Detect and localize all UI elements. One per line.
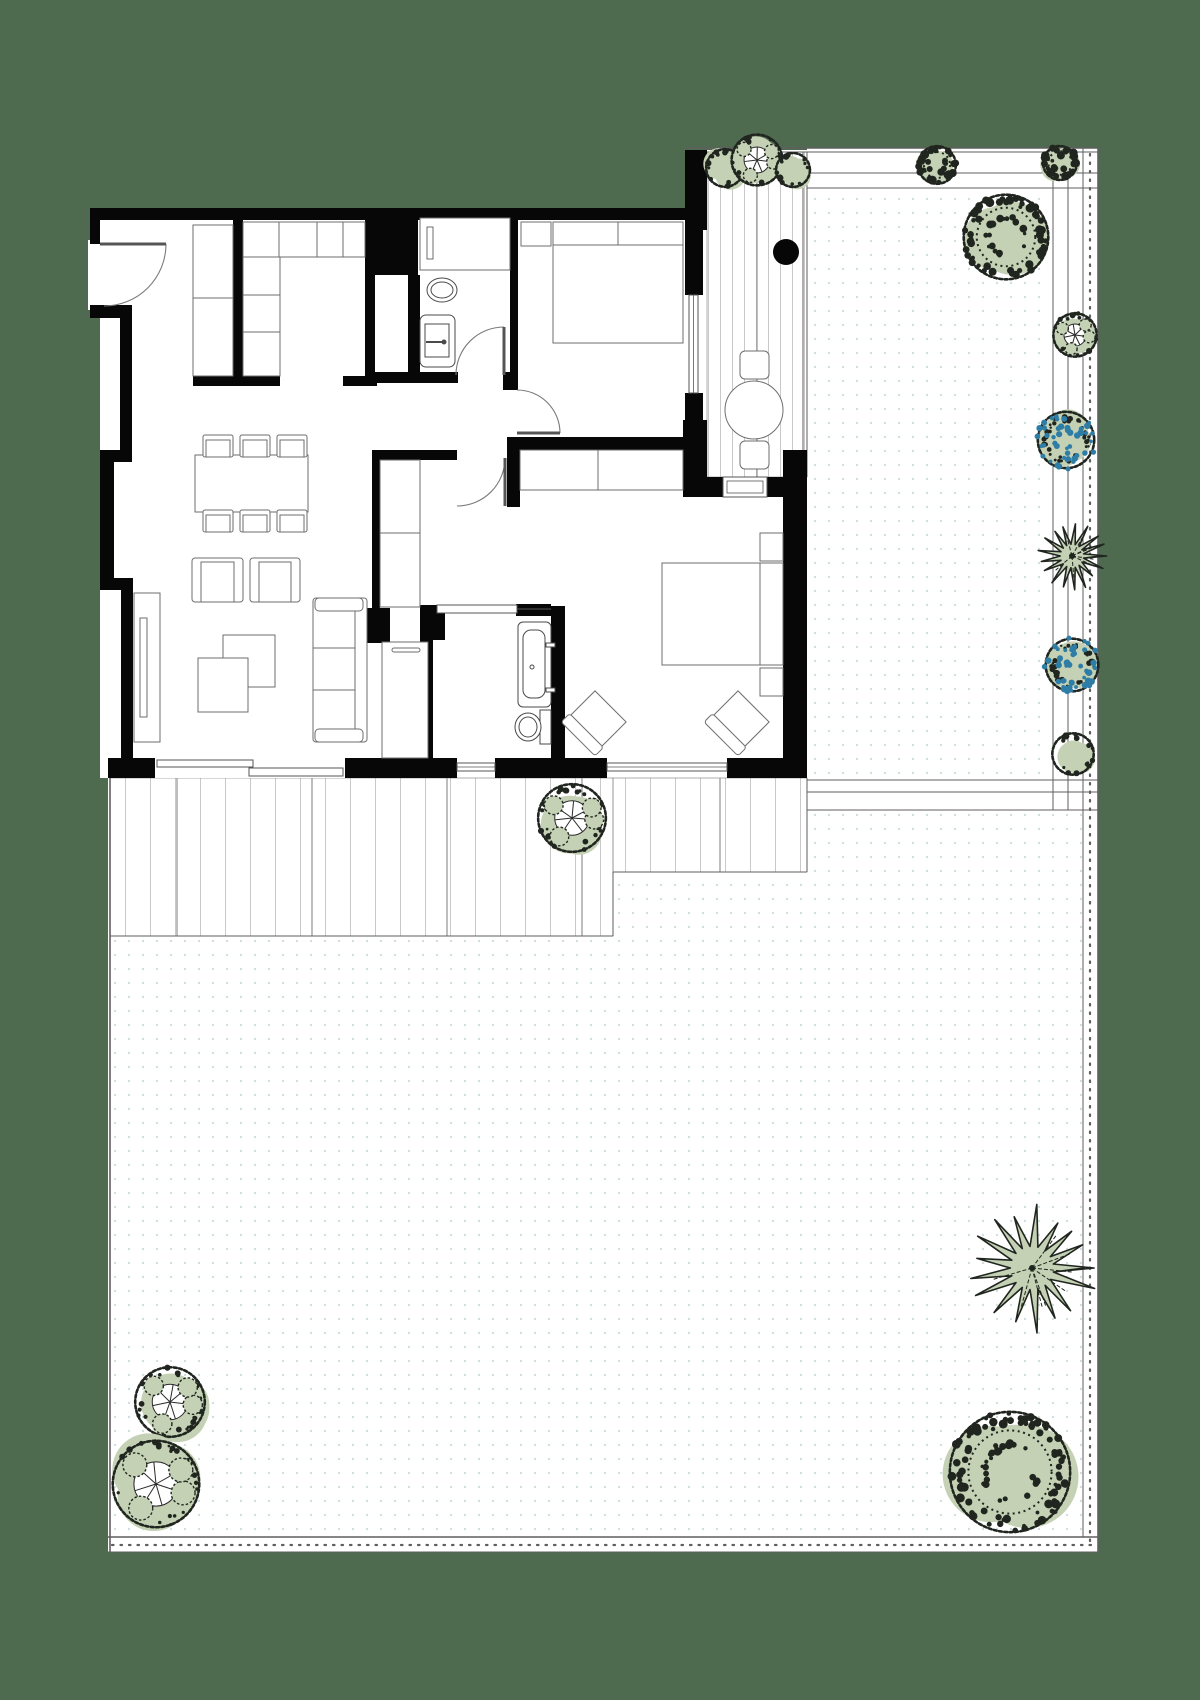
wall xyxy=(373,215,418,275)
coffee-table-b xyxy=(198,658,248,712)
lounge-chair-a xyxy=(192,558,243,602)
wall xyxy=(193,376,280,386)
wc-basin xyxy=(420,315,455,367)
floor-plan-drawing xyxy=(0,0,1200,1700)
wall xyxy=(507,437,520,507)
wall xyxy=(120,318,132,454)
bistro-chair-a xyxy=(740,351,769,379)
deck-south-right-planks xyxy=(613,778,807,872)
slider-panel xyxy=(249,768,343,776)
bath-window xyxy=(457,758,495,775)
dining-chair xyxy=(240,510,270,532)
wall xyxy=(373,372,458,383)
big-tree xyxy=(962,194,1048,280)
wall xyxy=(507,437,683,450)
kitchen-counter-side xyxy=(243,257,280,376)
bath-tub xyxy=(518,622,555,707)
wc-radiator xyxy=(427,227,433,259)
wc-toilet xyxy=(427,278,457,302)
wall xyxy=(767,477,807,497)
dining-chair xyxy=(203,510,233,532)
deck-south-left xyxy=(110,778,613,936)
wall xyxy=(510,220,518,376)
paper xyxy=(88,240,102,310)
wall xyxy=(90,305,132,318)
wall xyxy=(783,450,807,778)
wall xyxy=(90,208,100,244)
wall xyxy=(516,604,551,616)
wall xyxy=(343,376,377,386)
bath-toilet xyxy=(515,710,551,744)
wall xyxy=(367,608,390,643)
planter-dot xyxy=(773,239,799,265)
wall xyxy=(372,460,380,608)
deck-south-right xyxy=(613,778,807,872)
wall xyxy=(685,391,703,451)
bed2 xyxy=(662,563,783,665)
bedroom2-window xyxy=(607,758,727,775)
dining-table xyxy=(195,455,308,512)
wall xyxy=(372,450,457,460)
entry-closet xyxy=(193,225,233,376)
living-sliding-door xyxy=(155,758,345,778)
wall xyxy=(108,758,155,778)
tv-unit xyxy=(134,593,160,742)
bed1 xyxy=(553,222,683,343)
kitchen-counter-top xyxy=(243,222,365,257)
wall xyxy=(685,230,703,297)
bed2-nightstand-a xyxy=(760,533,783,561)
deck-shrub-b xyxy=(731,135,784,186)
bistro-table xyxy=(725,381,783,439)
bed2-nightstand-b xyxy=(760,668,783,696)
dining-chair xyxy=(240,435,270,457)
dining-chair xyxy=(277,510,307,532)
dining-chair xyxy=(277,435,307,457)
hall-cabinet xyxy=(382,642,428,758)
floor-plan-page xyxy=(0,0,1200,1700)
wall xyxy=(495,758,607,778)
wall xyxy=(408,275,420,375)
deck-threshold xyxy=(723,477,767,497)
wall xyxy=(100,460,114,582)
wall xyxy=(707,477,723,497)
hall-closet xyxy=(380,460,420,607)
wall xyxy=(121,588,133,760)
lawn-dots xyxy=(112,940,617,1533)
deck-south-left-planks xyxy=(110,778,613,936)
dining-chair xyxy=(203,435,233,457)
wall xyxy=(345,758,457,778)
wall xyxy=(551,606,565,758)
lounge-chair-b xyxy=(250,558,300,602)
bed2-wardrobe xyxy=(520,450,683,490)
bedroom1-window xyxy=(685,295,703,393)
lawn-dots xyxy=(617,875,810,1533)
bed1-nightstand xyxy=(521,222,551,246)
slider-panel xyxy=(157,760,253,767)
sofa xyxy=(313,598,367,742)
wall xyxy=(233,220,243,378)
bistro-chair-b xyxy=(740,441,769,469)
lawn-dots xyxy=(812,192,1050,777)
